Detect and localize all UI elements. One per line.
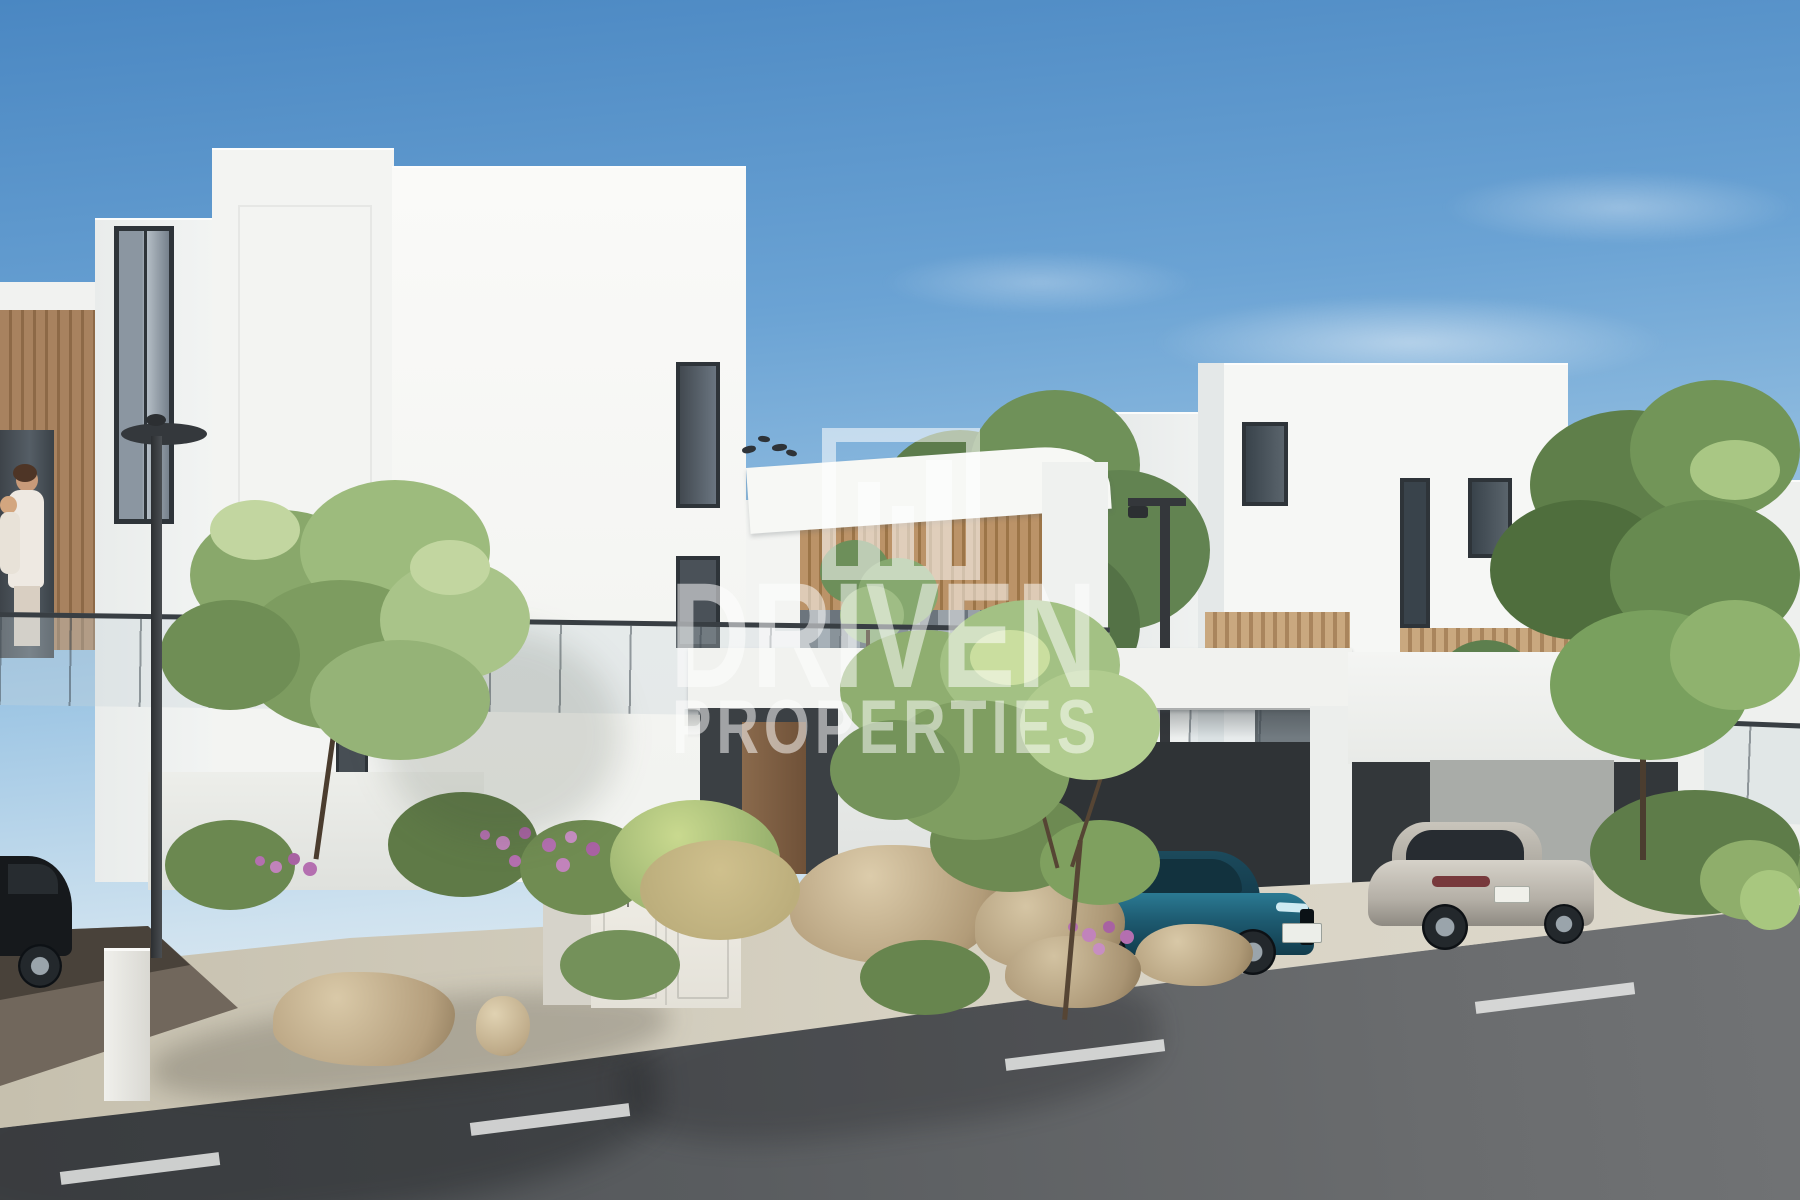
license-plate [1494,886,1530,903]
pergola-wood-slats [1205,612,1350,648]
cloud [1440,170,1800,245]
foliage-blob [160,600,300,710]
window-mullion [144,231,147,519]
foliage-highlight [410,540,490,595]
street-lamp-finial [146,414,166,426]
street-lamp-pole [151,436,162,958]
car-wheel [1422,904,1468,950]
child-body [0,512,20,574]
car-window [8,864,58,894]
scene-canvas: 25 26 [0,0,1800,1200]
street-lamp-head [1128,506,1148,518]
tree [150,470,550,890]
foliage-blob [310,640,490,760]
street-lamp-arm [1128,498,1186,506]
window [1400,478,1430,628]
cloud [880,250,1200,315]
tree [1490,380,1800,860]
boulder [273,972,455,1066]
dry-grasses [640,840,800,940]
window [1242,422,1288,506]
hair [13,464,37,482]
boulder [476,996,530,1056]
foliage-blob [830,720,960,820]
bush [1740,870,1800,930]
license-plate [1282,923,1322,943]
gate-post [104,948,150,1101]
foliage-highlight [970,630,1050,685]
bush [560,930,680,1000]
car-wheel [18,944,62,988]
parked-dark-car [0,856,72,988]
foliage-highlight [210,500,300,560]
foliage-highlight [1690,440,1780,500]
foliage-blob [1670,600,1800,710]
car-wheel [1544,904,1584,944]
street-lamp-head [121,423,207,445]
tree [820,600,1160,1020]
car-taillight [1432,876,1490,887]
slim-window-upper [676,362,720,508]
foliage-blob [1020,670,1160,780]
